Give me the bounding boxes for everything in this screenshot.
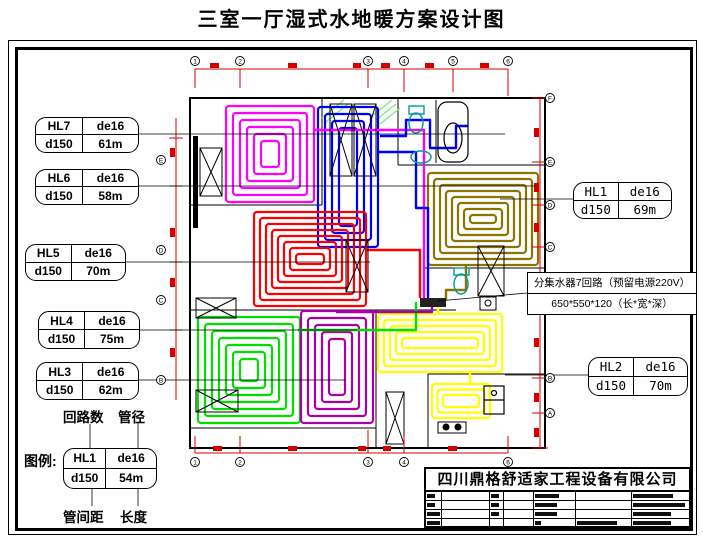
circuit-id: HL3 (37, 363, 83, 381)
circuit-id: HL4 (39, 312, 85, 330)
axis-marker: 2 (236, 57, 245, 66)
title-block-cell (504, 510, 534, 519)
loop-length: 70m (72, 263, 125, 281)
loop-label-hl4: HL4 de16 d150 75m (38, 311, 140, 349)
heating-plan-drawing: { "title": "三室一厅湿式水地暖方案设计图", "company": … (0, 0, 703, 541)
pipe-size: de16 (72, 245, 125, 263)
pipe-size: de16 (106, 449, 156, 469)
axis-marker: 2 (236, 458, 245, 467)
axis-marker: 1 (191, 57, 200, 66)
svg-text:3: 3 (366, 459, 370, 466)
title-block-cell (490, 519, 504, 528)
axis-marker: E (546, 158, 555, 167)
bathtub-icon (438, 102, 468, 162)
svg-text:F: F (548, 95, 552, 102)
svg-text:D: D (548, 202, 553, 209)
title-block-cell (426, 510, 442, 519)
svg-text:C: C (548, 244, 553, 251)
title-block-cell (490, 510, 504, 519)
circuit-id: HL6 (36, 170, 83, 187)
title-block-cell (426, 501, 442, 510)
axis-marker: 4 (400, 458, 409, 467)
axis-marker: 5 (449, 57, 458, 66)
legend-title: 图例: (24, 451, 57, 471)
loop-hl2-dining (378, 314, 502, 372)
loop-hl2-kitchen (432, 384, 490, 418)
svg-text:E: E (159, 157, 164, 164)
legend-label-pipe-diameter: 管径 (118, 406, 145, 426)
title-block-cell (504, 492, 534, 501)
title-block-cell (632, 492, 689, 501)
svg-text:6: 6 (506, 58, 510, 65)
loop-hl4-bedroom-bottom-left (198, 317, 300, 423)
legend-sample-box: HL1 de16 d150 54m (63, 448, 157, 489)
circuit-id: HL7 (36, 118, 83, 135)
wardrobes (196, 104, 504, 444)
pipe-size: de16 (85, 312, 139, 330)
title-block-cell (504, 501, 534, 510)
axis-marker: E (157, 156, 166, 165)
loop-label-hl5: HL5 de16 d150 70m (25, 244, 126, 281)
svg-text:D: D (159, 247, 164, 254)
legend-label-length: 长度 (120, 506, 147, 526)
circuit-id: HL2 (589, 358, 634, 377)
title-block-cell (490, 492, 504, 501)
svg-text:2: 2 (238, 58, 242, 65)
trunk-red (366, 250, 420, 298)
loop-label-hl7: HL7 de16 d150 61m (35, 117, 139, 153)
svg-text:4: 4 (402, 459, 406, 466)
pipe-spacing: d150 (36, 135, 83, 152)
pipe-size: de16 (83, 363, 138, 381)
circuit-id: HL5 (26, 245, 72, 263)
title-block-cell (534, 519, 576, 528)
title-block-cell (534, 510, 576, 519)
loop-label-hl6: HL6 de16 d150 58m (35, 169, 139, 205)
svg-text:1: 1 (193, 58, 197, 65)
manifold-note: 分集水器7回路（预留电源220V） 650*550*120（长*宽*深） (527, 272, 697, 315)
pipe-spacing: d150 (574, 201, 619, 219)
pipe-spacing: d150 (26, 263, 72, 281)
manifold (420, 298, 446, 307)
basin-icon (480, 297, 496, 310)
title-block-cell (534, 501, 576, 510)
pipe-spacing: d150 (36, 187, 83, 204)
svg-text:5: 5 (451, 58, 455, 65)
title-block-cell (490, 501, 504, 510)
loop-length: 54m (106, 469, 156, 489)
loop-label-hl2: HL2 de16 d150 70m (588, 357, 688, 396)
axis-marker: 1 (191, 458, 200, 467)
trunk-olive (446, 264, 466, 300)
title-block-cell (576, 510, 632, 519)
svg-text:E: E (548, 159, 553, 166)
title-block-cell (632, 510, 689, 519)
title-block-cell (534, 492, 576, 501)
axis-marker: 6 (504, 57, 513, 66)
title-block-cell (576, 492, 632, 501)
axis-marker: F (546, 94, 555, 103)
title-block-cell (576, 519, 632, 528)
axis-marker: D (157, 246, 166, 255)
svg-text:3: 3 (366, 58, 370, 65)
loop-length: 70m (634, 377, 687, 396)
axis-marker: B (546, 374, 555, 383)
svg-text:A: A (548, 410, 553, 417)
title-block-cell (426, 519, 442, 528)
title-block-cell (576, 501, 632, 510)
pipe-spacing: d150 (589, 377, 634, 396)
axis-marker: 6 (504, 458, 513, 467)
loop-length: 58m (83, 187, 138, 204)
pipe-size: de16 (83, 170, 138, 187)
svg-text:C: C (159, 297, 164, 304)
loop-hl1-bedroom-right (428, 173, 538, 265)
company-name: 四川鼎格舒适家工程设备有限公司 (426, 469, 689, 492)
title-block-cell (442, 519, 490, 528)
pipe-spacing: d150 (39, 330, 85, 348)
circuit-id: HL1 (64, 449, 106, 469)
axis-marker: C (546, 243, 555, 252)
legend-label-circuit-count: 回路数 (63, 406, 104, 426)
axis-marker: B (157, 376, 166, 385)
svg-text:6: 6 (506, 459, 510, 466)
title-block-cell (504, 519, 534, 528)
title-block-cell (632, 519, 689, 528)
svg-text:1: 1 (193, 459, 197, 466)
pipe-size: de16 (83, 118, 138, 135)
loop-label-hl3: HL3 de16 d150 62m (36, 362, 139, 400)
svg-text:B: B (548, 375, 552, 382)
svg-text:2: 2 (238, 459, 242, 466)
loop-length: 75m (85, 330, 139, 348)
title-block-cell (442, 501, 490, 510)
legend-label-pipe-spacing: 管间距 (63, 506, 104, 526)
pipe-spacing: d150 (37, 381, 83, 399)
loop-length: 62m (83, 381, 138, 399)
title-block-cell (442, 492, 490, 501)
axis-marker: A (546, 409, 555, 418)
title-block-cell (442, 510, 490, 519)
axis-marker: 4 (400, 57, 409, 66)
loop-label-hl1: HL1 de16 d150 69m (573, 182, 672, 219)
circuit-id: HL1 (574, 183, 619, 201)
stove-icon (438, 422, 466, 433)
manifold-note-line1: 分集水器7回路（预留电源220V） (528, 273, 696, 294)
title-block-cell (426, 492, 442, 501)
svg-text:B: B (159, 377, 163, 384)
axis-marker: 3 (364, 458, 373, 467)
axis-marker: D (546, 201, 555, 210)
axis-marker: C (157, 296, 166, 305)
manifold-note-line2: 650*550*120（长*宽*深） (528, 294, 696, 314)
axis-marker: 3 (364, 57, 373, 66)
pipe-size: de16 (634, 358, 687, 377)
svg-text:4: 4 (402, 58, 406, 65)
title-block: 四川鼎格舒适家工程设备有限公司 (424, 467, 691, 528)
loop-hl3-bedroom-bottom-mid (301, 311, 373, 423)
title-block-cell (632, 501, 689, 510)
loop-length: 61m (83, 135, 138, 152)
pipe-size: de16 (619, 183, 671, 201)
pipe-spacing: d150 (64, 469, 106, 489)
kitchen-sink-icon (484, 386, 504, 414)
loop-length: 69m (619, 201, 671, 219)
title-block-grid (426, 492, 689, 528)
loop-hl7-bedroom-top-left (226, 106, 314, 202)
